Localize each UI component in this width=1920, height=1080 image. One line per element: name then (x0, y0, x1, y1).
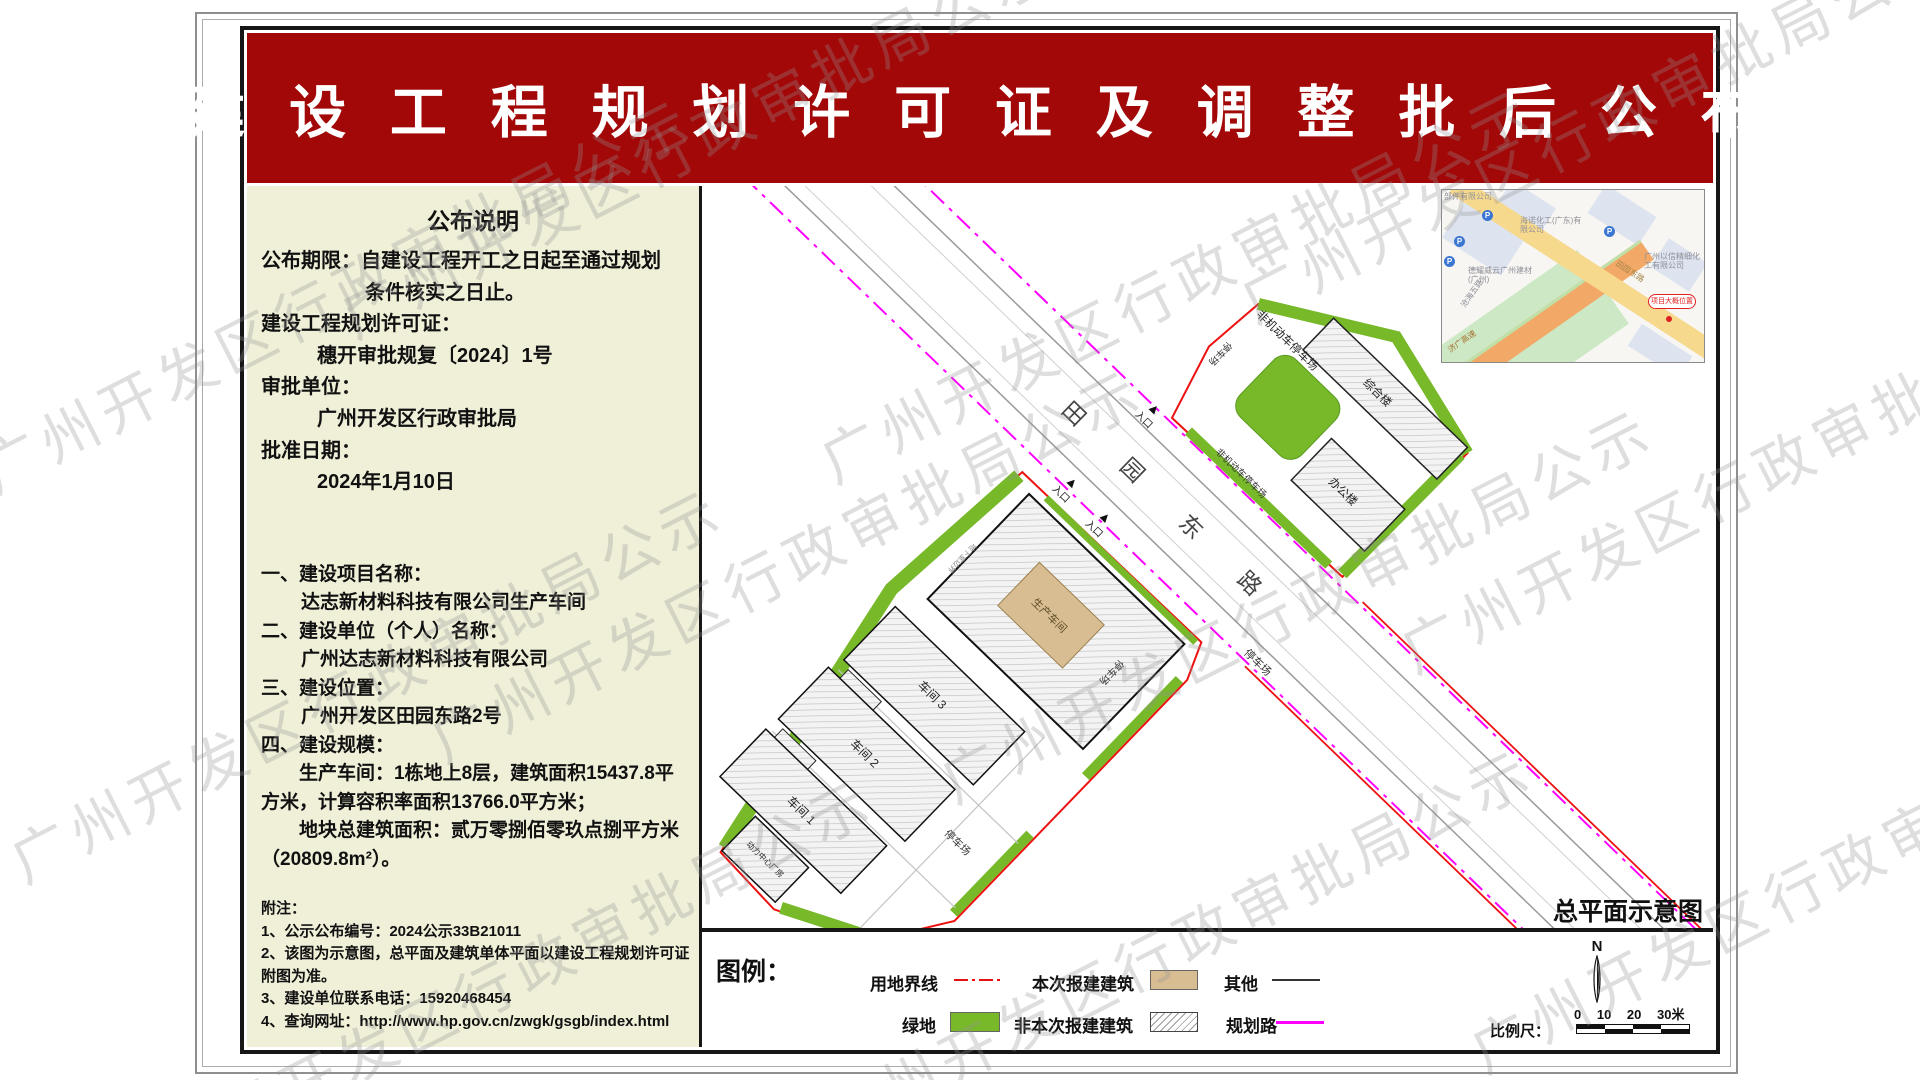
entrance-label: 入口 (1132, 409, 1154, 431)
section-title: 一、建设项目名称： (261, 561, 685, 590)
parking-p-icon: P (1604, 226, 1615, 237)
page-title: 建 设 工 程 规 划 许 可 证 及 调 整 批 后 公 布 (188, 67, 1772, 149)
notice-line: 建设工程规划许可证： (261, 309, 685, 341)
map-road-label: 沧海五路 (1458, 277, 1485, 310)
approving-authority: 广州开发区行政审批局 (261, 404, 685, 436)
map-poi-label: 广州以信精细化工有限公司 (1644, 252, 1704, 270)
new-building-swatch (1150, 970, 1198, 990)
footnote-url: 4、查询网址：http://www.hp.gov.cn/zwgk/gsgb/in… (261, 1011, 691, 1034)
legend-label-other: 其他 (1224, 970, 1258, 995)
scale-bar (1576, 1024, 1690, 1034)
section-title: 三、建设位置： (261, 675, 685, 704)
green-swatch (950, 1012, 1000, 1032)
legend: 图例： 用地界线 本次报建建筑 其他 绿地 非本次报建建筑 规划路 N (702, 932, 1713, 1047)
project-location-callout: 项目大概位置 (1648, 294, 1696, 309)
existing-building-swatch (1150, 1012, 1198, 1032)
section-title: 二、建设单位（个人）名称： (261, 618, 685, 647)
total-floor-area: 地块总建筑面积：贰万零捌佰零玖点捌平方米（20809.8m²）。 (261, 817, 685, 874)
notice-panel: 公布说明 公布期限：自建设工程开工之日起至通过规划 条件核实之日止。 建设工程规… (247, 186, 702, 1047)
project-location-dot (1666, 316, 1672, 322)
compass-needle-icon (1586, 955, 1608, 1003)
approval-date: 2024年1月10日 (261, 467, 685, 499)
section-title: 四、建设规模： (261, 732, 685, 761)
other-line-swatch (1272, 979, 1320, 981)
permit-number: 穗开审批规复〔2024〕1号 (261, 341, 685, 373)
project-info: 一、建设项目名称： 达志新材料科技有限公司生产车间 二、建设单位（个人）名称： … (261, 561, 685, 875)
map-poi-label: 部件有限公司 (1444, 192, 1504, 201)
footnotes-title: 附注： (261, 898, 691, 921)
notice-heading: 公布说明 (261, 202, 685, 236)
north-parcel: 综合楼 办公楼 非机动车停车场 停车场 非机动车停车场 入口 (1132, 244, 1491, 602)
footnote: 3、建设单位联系电话：15920468454 (261, 988, 691, 1011)
legend-label-boundary: 用地界线 (870, 970, 938, 995)
project-location: 广州开发区田园东路2号 (261, 703, 685, 732)
siteplan-area: 田 园 东 路 综合楼 办公楼 非机动车停车场 停车场 (702, 186, 1713, 1047)
project-name: 达志新材料科技有限公司生产车间 (261, 589, 685, 618)
map-poi-label: 海诺化工(广东)有限公司 (1520, 216, 1586, 234)
body-row: 公布说明 公布期限：自建设工程开工之日起至通过规划 条件核实之日止。 建设工程规… (247, 186, 1713, 1047)
map-building-block (1588, 189, 1657, 246)
compass: N (1582, 938, 1612, 1008)
parking-p-icon: P (1482, 210, 1493, 221)
legend-label-new-building: 本次报建建筑 (1032, 970, 1134, 995)
footnote: 1、公示公布编号：2024公示33B21011 (261, 921, 691, 944)
parking-p-icon: P (1454, 236, 1465, 247)
legend-label-planned-road: 规划路 (1226, 1012, 1277, 1037)
site-boundary-line (1363, 602, 1713, 928)
planned-road-swatch (1276, 1021, 1324, 1024)
project-scale: 生产车间：1栋地上8层，建筑面积15437.8平方米，计算容积率面积13766.… (261, 760, 685, 817)
footnotes: 附注： 1、公示公布编号：2024公示33B21011 2、该图为示意图，总平面… (261, 898, 691, 1033)
south-parcel: 生产车间 地下室边界 车间 3 车间 2 车间 1 动力中心厂房 (702, 460, 1213, 928)
announcement-sheet: 建 设 工 程 规 划 许 可 证 及 调 整 批 后 公 布 公布说明 公布期… (240, 26, 1720, 1054)
legend-label-green: 绿地 (902, 1012, 936, 1037)
parking-p-icon: P (1444, 256, 1455, 267)
legend-divider (702, 928, 1713, 932)
footnote: 2、该图为示意图，总平面及建筑单体平面以建设工程规划许可证附图为准。 (261, 943, 691, 988)
notice-line: 批准日期： (261, 436, 685, 468)
location-map-inset: P P P P 部件有限公司 海诺化工(广东)有限公司 德耀威云广州建材(广州)… (1441, 189, 1705, 363)
legend-label-existing-building: 非本次报建建筑 (1014, 1012, 1133, 1037)
scale-label: 比例尺： (1490, 1020, 1550, 1041)
builder-name: 广州达志新材料科技有限公司 (261, 646, 685, 675)
scale-ticks: 0 10 20 30米 (1574, 1004, 1684, 1023)
drawing-caption: 总平面示意图 (1553, 892, 1703, 928)
title-banner: 建 设 工 程 规 划 许 可 证 及 调 整 批 后 公 布 (247, 33, 1713, 183)
notice-line: 审批单位： (261, 372, 685, 404)
notice-line: 条件核实之日止。 (261, 278, 685, 310)
site-boundary-line (1245, 666, 1713, 928)
compass-north-label: N (1582, 938, 1612, 955)
entrance-arrow-icon (1066, 477, 1077, 488)
legend-title: 图例： (716, 952, 791, 988)
notice-line: 公布期限：自建设工程开工之日起至通过规划 (261, 246, 685, 278)
boundary-line-swatch (954, 979, 1004, 981)
